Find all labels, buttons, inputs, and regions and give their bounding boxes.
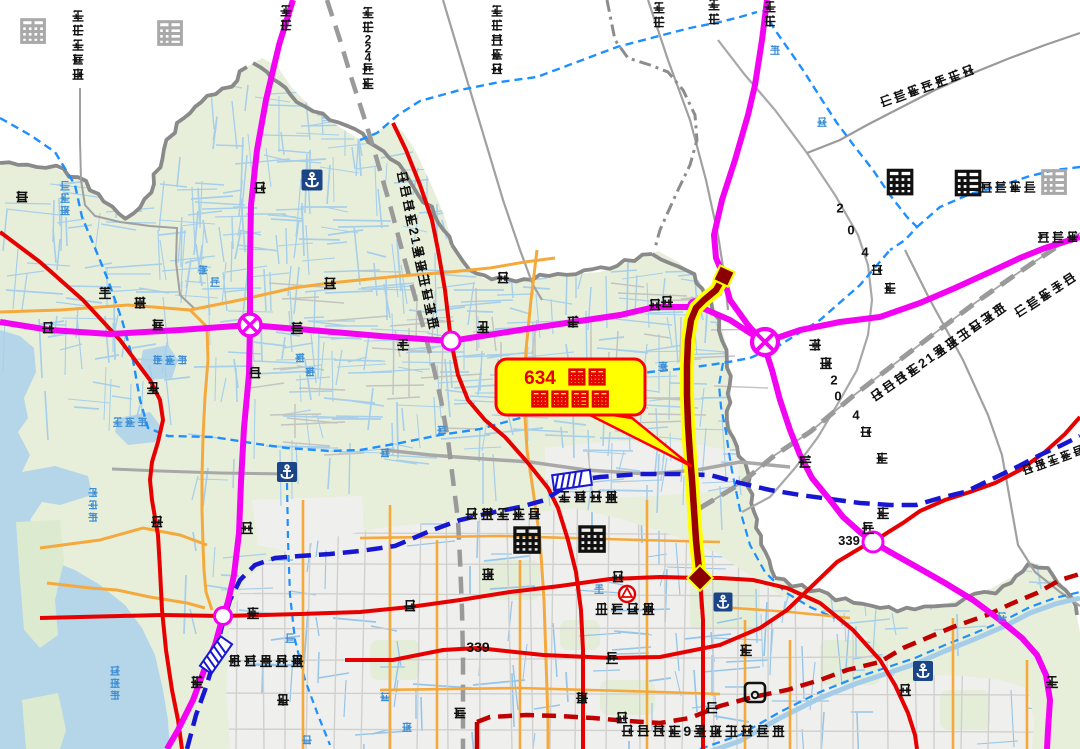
svg-text:339: 339 — [838, 533, 860, 548]
svg-text:634: 634 — [524, 368, 556, 389]
svg-text:339: 339 — [466, 639, 490, 655]
svg-text:0: 0 — [834, 389, 841, 404]
svg-text:0: 0 — [847, 223, 854, 238]
svg-text:4: 4 — [365, 51, 372, 65]
svg-text:4: 4 — [861, 245, 869, 260]
svg-text:4: 4 — [852, 408, 860, 423]
svg-text:2: 2 — [830, 373, 837, 388]
svg-text:9: 9 — [683, 723, 691, 739]
svg-text:2: 2 — [836, 201, 843, 216]
